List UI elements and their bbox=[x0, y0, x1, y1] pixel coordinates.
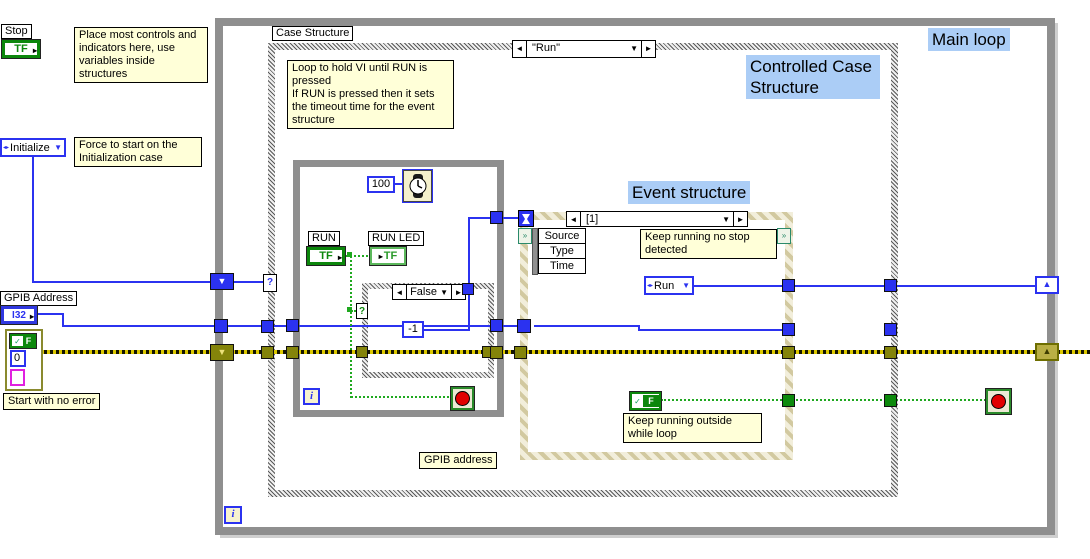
block-diagram: ◄ "Run" ▼ ► ◄ False ▼ ► ◄ [1] ▼ ► Stop P… bbox=[0, 0, 1090, 559]
tunnel-timeout-innerloop-right[interactable] bbox=[490, 211, 503, 224]
tunnel-neg1-out[interactable] bbox=[462, 283, 474, 295]
stop-label: Stop bbox=[1, 24, 32, 39]
event-data-field-time[interactable]: Time bbox=[538, 258, 586, 274]
run-enum-constant[interactable]: ◂▸ Run ▼ bbox=[644, 276, 694, 295]
hourglass-icon bbox=[521, 213, 531, 225]
case-structure-label: Case Structure bbox=[272, 26, 353, 41]
shift-register-left-enum[interactable]: ▼ bbox=[210, 273, 234, 290]
initialize-enum-value: Initialize bbox=[10, 142, 54, 154]
inner-case-dropdown-icon[interactable]: ▼ bbox=[440, 285, 451, 299]
tunnel-gpib-main-left[interactable] bbox=[214, 319, 228, 333]
error-status-boolean[interactable]: ✓ F bbox=[10, 334, 36, 348]
stop-sign-icon bbox=[991, 394, 1006, 409]
keep-running-comment: Keep running no stop detected bbox=[640, 229, 777, 259]
dynamic-event-terminal-left[interactable]: » bbox=[518, 228, 532, 244]
controlled-case-title: Controlled Case Structure bbox=[746, 55, 880, 99]
gpib-wire-h1 bbox=[37, 313, 64, 315]
output-arrow-icon: ▸ bbox=[30, 312, 34, 321]
output-arrow-icon: ▸ bbox=[33, 46, 37, 55]
stop-tf-text: TF bbox=[14, 43, 27, 55]
event-dropdown-icon[interactable]: ▼ bbox=[722, 212, 733, 226]
false-boolean-constant[interactable]: ✓ F bbox=[630, 392, 661, 410]
tunnel-stop-event-right[interactable] bbox=[782, 394, 795, 407]
run-label: RUN bbox=[308, 231, 340, 246]
checkmark-icon: ✓ bbox=[632, 397, 643, 406]
event-next-arrow[interactable]: ► bbox=[733, 212, 747, 226]
case-selector[interactable]: ◄ "Run" ▼ ► bbox=[512, 40, 656, 58]
tunnel-error-event-right[interactable] bbox=[782, 346, 795, 359]
tunnel-stop-case-right[interactable] bbox=[884, 394, 897, 407]
run-wire-v bbox=[350, 256, 352, 398]
event-timeout-terminal[interactable] bbox=[518, 210, 534, 227]
tunnel-error-innerloop-left[interactable] bbox=[286, 346, 299, 359]
main-loop-stop-terminal[interactable] bbox=[986, 389, 1011, 414]
error-source-string[interactable] bbox=[10, 369, 25, 386]
wire-junction-dot bbox=[347, 252, 352, 257]
run-enum-value: Run bbox=[654, 280, 682, 292]
inner-case-selector-terminal[interactable]: ? bbox=[356, 303, 368, 319]
tunnel-gpib-innerloop-right[interactable] bbox=[490, 319, 503, 332]
event-data-field-type[interactable]: Type bbox=[538, 243, 586, 259]
tunnel-gpib-case-right[interactable] bbox=[884, 323, 897, 336]
inner-loop-iteration-terminal[interactable]: i bbox=[303, 388, 320, 405]
run-enum-wire bbox=[694, 285, 1040, 287]
event-selector-value[interactable]: [1] bbox=[581, 212, 722, 226]
error-comment: Start with no error bbox=[3, 393, 100, 410]
tunnel-gpib-case-left[interactable] bbox=[261, 320, 274, 333]
case-selector-terminal[interactable]: ? bbox=[263, 274, 277, 292]
stop-sign-icon bbox=[455, 391, 470, 406]
error-cluster-constant[interactable]: ✓ F 0 bbox=[5, 329, 43, 391]
timeout-constant-neg1[interactable]: -1 bbox=[402, 321, 424, 338]
gpib-local-label: GPIB address bbox=[419, 452, 497, 469]
clock-icon bbox=[407, 173, 429, 199]
initialize-wire-h2 bbox=[232, 281, 266, 283]
enum-icon: ◂▸ bbox=[2, 144, 10, 151]
tunnel-error-case-left[interactable] bbox=[261, 346, 274, 359]
tunnel-error-event-left[interactable] bbox=[514, 346, 527, 359]
stop-terminal[interactable]: TF ▸ bbox=[2, 40, 40, 58]
tunnel-error-innercase-left[interactable] bbox=[356, 346, 368, 358]
tunnel-gpib-event-left[interactable] bbox=[517, 319, 531, 333]
event-timeout-wire-v bbox=[468, 218, 470, 283]
error-code-constant[interactable]: 0 bbox=[10, 350, 26, 367]
run-tf-text: TF bbox=[319, 250, 332, 262]
main-loop-title: Main loop bbox=[928, 28, 1010, 51]
gpib-address-terminal[interactable]: I32 ▸ bbox=[1, 306, 37, 324]
run-to-stop-wire bbox=[351, 396, 453, 398]
event-data-field-source[interactable]: Source bbox=[538, 228, 586, 244]
case-prev-arrow[interactable]: ◄ bbox=[513, 41, 527, 57]
gpib-wire-h5 bbox=[638, 329, 788, 331]
checkmark-icon: ✓ bbox=[12, 337, 23, 346]
shift-register-left-error[interactable]: ▼ bbox=[210, 344, 234, 361]
gpib-wire-h4 bbox=[534, 325, 640, 327]
run-led-tf-text: TF bbox=[384, 250, 397, 262]
event-selector[interactable]: ◄ [1] ▼ ► bbox=[566, 211, 748, 227]
run-led-label: RUN LED bbox=[368, 231, 424, 246]
false-constant-value: F bbox=[643, 395, 659, 407]
dynamic-event-terminal-right[interactable]: » bbox=[777, 228, 791, 244]
initialize-enum[interactable]: ◂▸ Initialize ▼ bbox=[0, 138, 66, 157]
initialize-wire-v bbox=[32, 157, 34, 283]
case-next-arrow[interactable]: ► bbox=[641, 41, 655, 57]
gpib-wire-h2 bbox=[62, 325, 228, 327]
inner-loop-stop-terminal[interactable] bbox=[451, 387, 474, 410]
initialize-comment: Force to start on the Initialization cas… bbox=[74, 137, 202, 167]
tunnel-error-innerloop-right[interactable] bbox=[490, 346, 503, 359]
shift-register-right-enum[interactable]: ▲ bbox=[1035, 276, 1059, 294]
loop-hold-comment: Loop to hold VI until RUN is pressed If … bbox=[287, 60, 454, 129]
run-led-terminal[interactable]: ▸ TF bbox=[370, 247, 406, 265]
neg1-wire-h bbox=[424, 329, 470, 331]
enum-dropdown-icon[interactable]: ▼ bbox=[682, 281, 692, 290]
gpib-address-label: GPIB Address bbox=[0, 291, 77, 306]
wait-ms-function[interactable] bbox=[403, 170, 432, 202]
tunnel-gpib-innerloop-left[interactable] bbox=[286, 319, 299, 332]
shift-register-right-error[interactable]: ▲ bbox=[1035, 343, 1059, 361]
initialize-wire-h bbox=[32, 281, 212, 283]
neg1-wire-v bbox=[468, 295, 470, 331]
case-dropdown-icon[interactable]: ▼ bbox=[630, 41, 641, 57]
event-structure-title: Event structure bbox=[628, 181, 750, 204]
case-selector-value[interactable]: "Run" bbox=[527, 41, 630, 57]
inner-case-selector[interactable]: ◄ False ▼ ► bbox=[392, 284, 466, 300]
main-loop-iteration-terminal[interactable]: i bbox=[224, 506, 242, 524]
tunnel-run-case-right[interactable] bbox=[884, 279, 897, 292]
enum-icon: ◂▸ bbox=[646, 282, 654, 289]
error-wire-left bbox=[41, 350, 212, 354]
place-controls-comment: Place most controls and indicators here,… bbox=[74, 27, 208, 83]
output-arrow-icon: ▸ bbox=[338, 253, 342, 262]
run-terminal[interactable]: TF ▸ bbox=[307, 247, 345, 265]
inner-case-selector-value[interactable]: False bbox=[407, 285, 440, 299]
error-status-value: F bbox=[23, 335, 34, 347]
tunnel-error-case-right[interactable] bbox=[884, 346, 897, 359]
event-prev-arrow[interactable]: ◄ bbox=[567, 212, 581, 226]
inner-case-prev-arrow[interactable]: ◄ bbox=[393, 285, 407, 299]
enum-dropdown-icon[interactable]: ▼ bbox=[54, 143, 64, 152]
timeout-constant-100[interactable]: 100 bbox=[367, 176, 395, 193]
i32-text: I32 bbox=[12, 310, 26, 321]
tunnel-run-event-right[interactable] bbox=[782, 279, 795, 292]
keep-running-outside-comment: Keep running outside while loop bbox=[623, 413, 762, 443]
false-to-stop-wire bbox=[661, 399, 989, 401]
wire-junction-dot bbox=[347, 307, 352, 312]
tunnel-gpib-event-right[interactable] bbox=[782, 323, 795, 336]
